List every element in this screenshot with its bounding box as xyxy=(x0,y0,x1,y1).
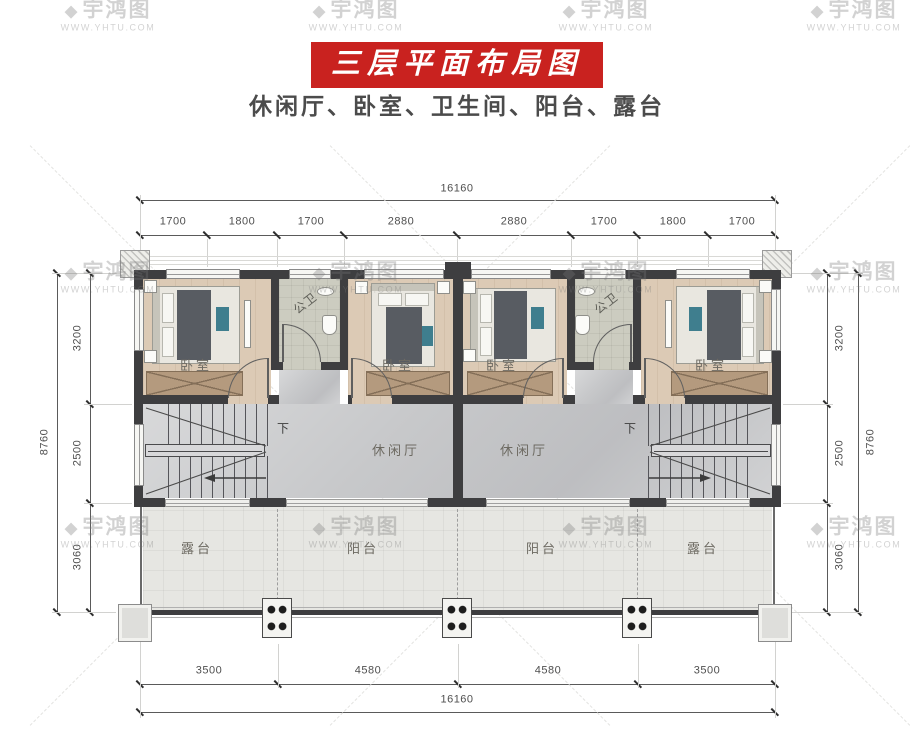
pillow xyxy=(480,294,492,323)
railing-ornament-post xyxy=(442,598,472,638)
watermark: ◆宇鸿图 WWW.YHTU.COM xyxy=(559,0,654,33)
dim-label: 3200 xyxy=(73,325,84,351)
blanket xyxy=(494,291,527,359)
bed xyxy=(152,286,240,364)
terrace-slider-window xyxy=(286,499,428,507)
dim-line-left-segments xyxy=(90,273,91,612)
room-label-balcony: 阳台 xyxy=(347,541,379,557)
bed xyxy=(676,286,764,364)
room-label-bedroom: 卧室 xyxy=(382,358,414,374)
eave-line xyxy=(143,256,772,257)
bath-2-wall-bottom xyxy=(629,362,641,370)
watermark-url: WWW.YHTU.COM xyxy=(61,23,156,34)
extension-line xyxy=(84,503,132,504)
watermark: ◆宇鸿图 WWW.YHTU.COM xyxy=(807,0,902,33)
window xyxy=(771,289,781,351)
stair-rail xyxy=(651,444,771,457)
yhtu-logo-icon: ◆ xyxy=(562,2,575,22)
pillow xyxy=(378,293,402,306)
pillow xyxy=(405,293,429,306)
terrace-edge-left xyxy=(140,507,142,611)
nightstand xyxy=(437,281,450,294)
lower-wall-pier xyxy=(750,498,772,507)
bath-door-leaf xyxy=(630,324,632,362)
stair-treads xyxy=(648,456,748,498)
door-leaf xyxy=(267,358,269,398)
window xyxy=(166,269,240,279)
terrace-divider xyxy=(277,509,278,605)
room-label-terrace: 露台 xyxy=(181,541,213,557)
throw xyxy=(422,326,433,346)
dim-label: 16160 xyxy=(440,695,473,706)
dim-label: 3500 xyxy=(196,666,222,677)
dim-label: 2880 xyxy=(501,217,527,228)
central-wall xyxy=(453,270,463,507)
bath-2-wall-bottom xyxy=(567,362,594,370)
yhtu-logo-icon: ◆ xyxy=(64,2,77,22)
dim-label: 16160 xyxy=(440,184,473,195)
extension-line xyxy=(571,239,572,267)
dim-label: 2880 xyxy=(388,217,414,228)
extension-line xyxy=(207,239,208,267)
door-leaf xyxy=(644,358,646,398)
watermark-brand: 宇鸿图 xyxy=(829,0,898,22)
bath-1-wall-right xyxy=(340,270,348,370)
bath-2-wall-right xyxy=(633,270,641,370)
dim-line-bottom-total xyxy=(140,712,775,713)
extension-line xyxy=(637,239,638,267)
railing-ornament-post xyxy=(262,598,292,638)
lower-wall-pier xyxy=(428,498,486,507)
door-leaf xyxy=(562,358,564,398)
toilet xyxy=(322,315,337,335)
corridor-wall xyxy=(463,395,523,404)
bath-door-leaf xyxy=(282,324,284,362)
extension-line xyxy=(638,644,639,688)
lower-wall-pier xyxy=(250,498,286,507)
terrace-slider-window xyxy=(165,499,250,507)
bath-1-wall-bottom xyxy=(271,362,283,370)
watermark-url: WWW.YHTU.COM xyxy=(807,23,902,34)
corner-column xyxy=(118,604,152,642)
watermark-url: WWW.YHTU.COM xyxy=(807,285,902,296)
lower-wall-pier xyxy=(630,498,666,507)
window xyxy=(134,424,144,486)
watermark-brand: 宇鸿图 xyxy=(581,0,650,22)
corridor-wall xyxy=(685,395,772,404)
room-label-balcony: 阳台 xyxy=(526,541,558,557)
dim-label: 3200 xyxy=(835,325,846,351)
extension-line xyxy=(783,273,863,274)
corridor-wall xyxy=(563,395,575,404)
stair-treads xyxy=(168,404,268,446)
blanket xyxy=(707,290,741,360)
dim-label: 1700 xyxy=(160,217,186,228)
central-wall-cap xyxy=(445,262,471,271)
stair-rail xyxy=(145,444,265,457)
floor-plan-page: 三层平面布局图 休闲厅、卧室、卫生间、阳台、露台 xyxy=(0,0,910,749)
nightstand xyxy=(463,349,476,362)
extension-line xyxy=(458,644,459,688)
terrace-divider xyxy=(457,509,458,605)
room-label-bedroom: 卧室 xyxy=(695,358,727,374)
dim-label: 3060 xyxy=(835,544,846,570)
dim-label: 2500 xyxy=(835,440,846,466)
bath-2-wall-left xyxy=(567,270,575,370)
pillow xyxy=(480,327,492,356)
yhtu-logo-icon: ◆ xyxy=(810,2,823,22)
dim-line-right-segments xyxy=(827,273,828,612)
watermark-brand: 宇鸿图 xyxy=(331,0,400,22)
room-label-leisure: 休闲厅 xyxy=(500,443,548,459)
extension-line xyxy=(52,612,116,613)
throw xyxy=(216,307,229,331)
window xyxy=(471,269,551,279)
throw xyxy=(531,307,544,329)
dim-label: 4580 xyxy=(535,666,561,677)
headboard xyxy=(372,284,434,291)
extension-line xyxy=(84,404,132,405)
window xyxy=(584,269,626,279)
dim-label: 3060 xyxy=(73,544,84,570)
dim-line-left-total xyxy=(57,273,58,612)
dim-line-right-total xyxy=(858,273,859,612)
nightstand xyxy=(355,281,368,294)
stair-treads xyxy=(168,456,268,498)
corridor-wall xyxy=(268,395,279,404)
dim-label: 4580 xyxy=(355,666,381,677)
hall-patch-1 xyxy=(279,370,340,404)
corridor-wall xyxy=(143,395,228,404)
washbasin xyxy=(317,287,334,296)
extension-line xyxy=(783,404,833,405)
dim-line-top-total xyxy=(140,200,775,201)
nightstand xyxy=(759,350,772,363)
pillow xyxy=(162,293,174,323)
dim-label: 1700 xyxy=(591,217,617,228)
watermark-brand: 宇鸿图 xyxy=(829,516,898,539)
terrace-slider-window xyxy=(666,499,750,507)
room-label-bedroom: 卧室 xyxy=(486,358,518,374)
hall-patch-2 xyxy=(575,370,633,404)
extension-line xyxy=(344,239,345,267)
watermark-url: WWW.YHTU.COM xyxy=(309,23,404,34)
window xyxy=(364,269,444,279)
watermark: ◆宇鸿图 WWW.YHTU.COM xyxy=(807,516,902,551)
lower-wall-pier xyxy=(143,498,165,507)
bath-1-wall-left xyxy=(271,270,279,370)
watermark-url: WWW.YHTU.COM xyxy=(559,23,654,34)
room-label-leisure: 休闲厅 xyxy=(372,443,420,459)
nightstand xyxy=(144,280,157,293)
dim-label: 2500 xyxy=(73,440,84,466)
bench xyxy=(665,300,672,348)
corner-column xyxy=(758,604,792,642)
yhtu-logo-icon: ◆ xyxy=(64,519,77,539)
blanket xyxy=(386,307,422,364)
dim-label: 1700 xyxy=(298,217,324,228)
room-label-bedroom: 卧室 xyxy=(180,358,212,374)
pillow xyxy=(742,327,754,357)
dim-label: 8760 xyxy=(40,429,51,455)
extension-line xyxy=(278,644,279,688)
page-subtitle: 休闲厅、卧室、卫生间、阳台、露台 xyxy=(249,93,665,121)
terrace-divider xyxy=(637,509,638,605)
page-title: 三层平面布局图 xyxy=(311,42,603,88)
corridor-wall xyxy=(392,395,453,404)
room-label-terrace: 露台 xyxy=(687,541,719,557)
terrace-slider-window xyxy=(486,499,630,507)
pillow xyxy=(742,293,754,323)
terrace-edge-right xyxy=(773,507,775,611)
railing-ornament-post xyxy=(622,598,652,638)
toilet xyxy=(575,315,590,335)
yhtu-logo-icon: ◆ xyxy=(312,2,325,22)
dim-label: 1800 xyxy=(229,217,255,228)
window xyxy=(289,269,331,279)
window xyxy=(676,269,750,279)
wardrobe xyxy=(671,371,768,396)
throw xyxy=(689,307,702,331)
dim-label: 1800 xyxy=(660,217,686,228)
dim-label: 3500 xyxy=(694,666,720,677)
window xyxy=(771,424,781,486)
stairs-down-label: 下 xyxy=(277,420,289,437)
pillow xyxy=(162,327,174,357)
eave-line xyxy=(143,260,772,261)
watermark: ◆宇鸿图 WWW.YHTU.COM xyxy=(61,0,156,33)
extension-line xyxy=(783,503,833,504)
watermark-brand: 宇鸿图 xyxy=(83,0,152,22)
stair-treads xyxy=(648,404,748,446)
dim-label: 1700 xyxy=(729,217,755,228)
dim-label: 8760 xyxy=(866,429,877,455)
door-leaf xyxy=(351,358,353,398)
watermark: ◆宇鸿图 WWW.YHTU.COM xyxy=(309,0,404,33)
washbasin xyxy=(578,287,595,296)
nightstand xyxy=(144,350,157,363)
window xyxy=(134,289,144,351)
extension-line xyxy=(277,239,278,267)
extension-line xyxy=(708,239,709,267)
blanket xyxy=(177,290,211,360)
bed xyxy=(371,283,435,367)
stairs-down-label: 下 xyxy=(624,420,636,437)
bath-1-wall-bottom xyxy=(321,362,348,370)
watermark-url: WWW.YHTU.COM xyxy=(807,540,902,551)
yhtu-logo-icon: ◆ xyxy=(810,519,823,539)
bench xyxy=(244,300,251,348)
bed xyxy=(470,288,556,362)
watermark: ◆宇鸿图 WWW.YHTU.COM xyxy=(807,261,902,296)
nightstand xyxy=(463,281,476,294)
